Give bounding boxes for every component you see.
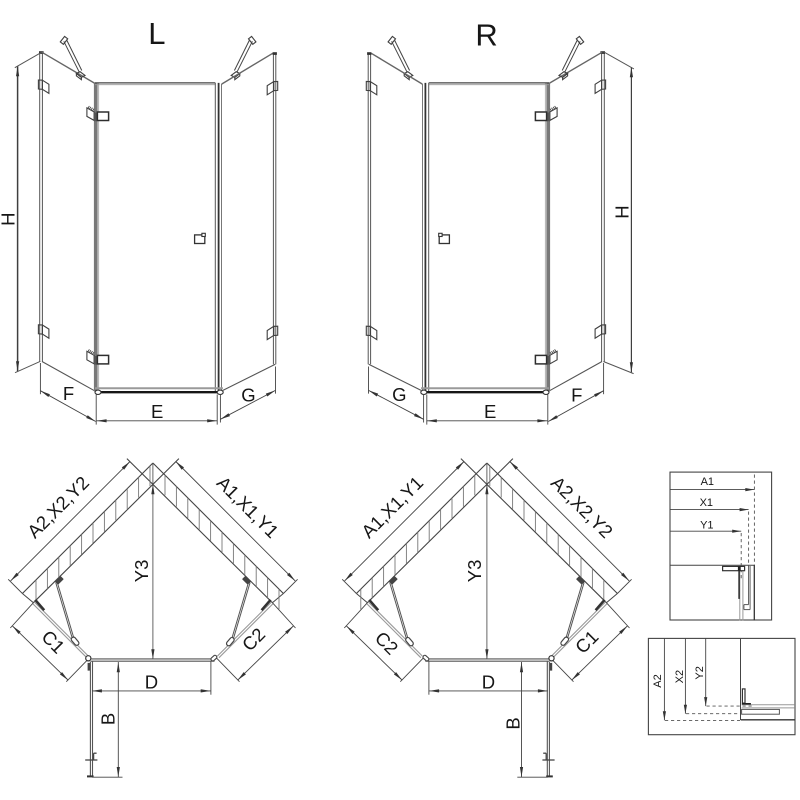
svg-text:Y3: Y3 — [464, 560, 485, 583]
svg-text:G: G — [241, 384, 255, 405]
svg-text:Y2: Y2 — [694, 666, 706, 679]
svg-text:L: L — [148, 16, 165, 51]
svg-text:Y3: Y3 — [131, 560, 152, 583]
svg-text:C1: C1 — [571, 626, 603, 658]
svg-text:E: E — [151, 401, 163, 422]
svg-text:B: B — [98, 713, 119, 725]
svg-text:D: D — [145, 671, 158, 692]
svg-text:R: R — [475, 18, 497, 53]
svg-text:D: D — [482, 671, 495, 692]
svg-text:A2,X2,Y2: A2,X2,Y2 — [547, 472, 617, 542]
svg-text:A2: A2 — [652, 674, 664, 687]
svg-text:A1,X1,Y1: A1,X1,Y1 — [213, 472, 283, 542]
svg-text:H: H — [611, 205, 632, 218]
svg-text:C2: C2 — [238, 624, 270, 656]
svg-text:X2: X2 — [674, 670, 686, 683]
svg-text:H: H — [0, 213, 19, 226]
svg-text:C1: C1 — [38, 626, 70, 658]
svg-text:F: F — [63, 383, 74, 404]
svg-text:X1: X1 — [700, 497, 713, 509]
svg-text:B: B — [503, 717, 524, 729]
svg-text:A1: A1 — [701, 476, 714, 488]
svg-text:A1,X1,Y1: A1,X1,Y1 — [357, 472, 427, 542]
svg-text:G: G — [392, 384, 406, 405]
svg-text:Y1: Y1 — [700, 519, 713, 531]
svg-text:A2,X2,Y2: A2,X2,Y2 — [23, 472, 93, 542]
svg-text:F: F — [571, 384, 582, 405]
svg-text:E: E — [484, 401, 496, 422]
